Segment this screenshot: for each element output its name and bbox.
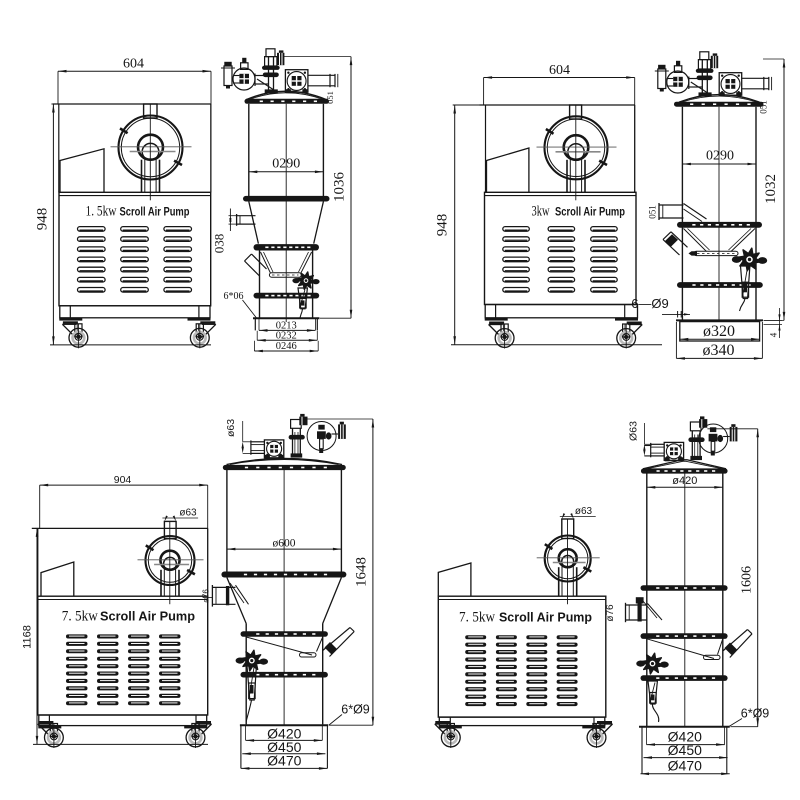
svg-text:Scroll Air Pump: Scroll Air Pump [555,207,625,219]
svg-text:604: 604 [123,57,144,72]
svg-text:ø63: ø63 [225,419,237,437]
svg-text:604: 604 [549,63,570,78]
svg-text:ø76: ø76 [605,604,616,622]
svg-text:1. 5kw: 1. 5kw [86,204,117,220]
svg-text:4: 4 [769,332,779,337]
svg-text:ø63: ø63 [575,506,593,517]
svg-text:7. 5kw: 7. 5kw [459,610,495,626]
svg-text:6*Ø9: 6*Ø9 [741,707,770,721]
svg-text:1648: 1648 [354,557,370,587]
svg-text:038: 038 [212,234,227,254]
svg-text:1032: 1032 [763,174,779,204]
svg-text:ø340: ø340 [703,342,735,359]
svg-text:Scroll Air Pump: Scroll Air Pump [100,610,195,624]
svg-text:6—Ø9: 6—Ø9 [631,296,669,311]
svg-text:Ø470: Ø470 [668,758,702,774]
svg-text:1036: 1036 [332,172,348,203]
svg-text:6*Ø9: 6*Ø9 [341,703,370,717]
svg-text:6*06: 6*06 [224,291,244,302]
svg-text:904: 904 [114,474,132,486]
svg-text:948: 948 [35,208,51,231]
svg-text:7. 5kw: 7. 5kw [62,609,98,625]
svg-text:0290: 0290 [706,149,734,164]
svg-text:ø600: ø600 [273,538,296,550]
svg-text:Ø450: Ø450 [668,742,702,758]
svg-text:1168: 1168 [22,625,34,649]
svg-text:Scroll Air Pump: Scroll Air Pump [499,611,592,625]
svg-text:Scroll Air Pump: Scroll Air Pump [120,207,190,219]
svg-text:ø320: ø320 [703,323,735,340]
svg-text:3kw: 3kw [532,204,550,220]
svg-text:0290: 0290 [272,157,300,172]
svg-text:051: 051 [648,205,658,219]
svg-text:ø420: ø420 [672,475,697,487]
svg-text:ø76: ø76 [202,589,211,603]
svg-text:1606: 1606 [740,566,755,594]
svg-text:ø63: ø63 [179,508,197,519]
svg-text:Ø470: Ø470 [267,753,301,769]
svg-text:Ø63: Ø63 [628,421,640,441]
svg-text:948: 948 [435,214,451,237]
